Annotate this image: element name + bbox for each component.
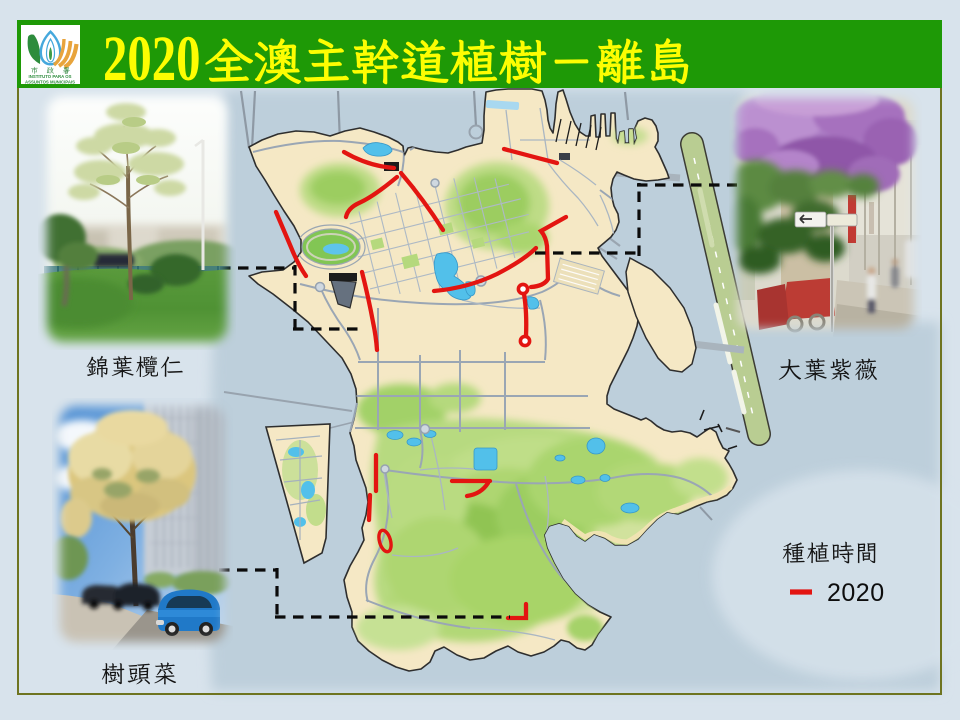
svg-text:2020: 2020 — [827, 579, 885, 607]
svg-text:INSTITUTO PARA OS: INSTITUTO PARA OS — [29, 74, 72, 79]
svg-text:ASSUNTOS MUNICIPAIS: ASSUNTOS MUNICIPAIS — [25, 80, 75, 85]
